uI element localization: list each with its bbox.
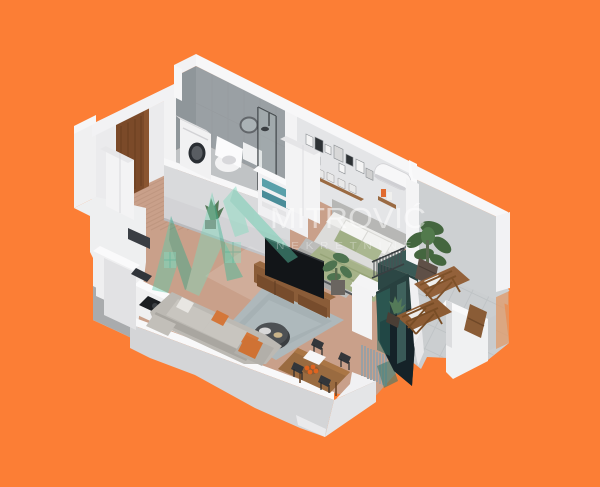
svg-text:NEKRETNINE: NEKRETNINE [276,240,418,252]
svg-text:MITROVIĆ: MITROVIĆ [270,202,426,235]
